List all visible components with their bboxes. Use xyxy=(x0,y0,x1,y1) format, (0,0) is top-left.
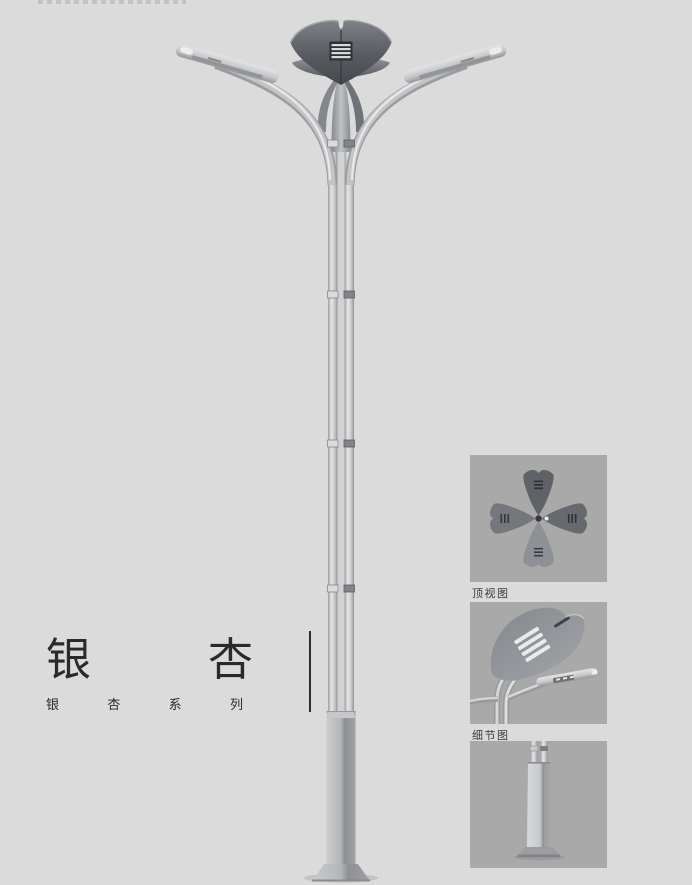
title-char: 杏 xyxy=(208,636,253,683)
square-base-column xyxy=(304,711,378,883)
left-lamp-head xyxy=(174,43,279,85)
subtitle-char: 杏 xyxy=(107,694,120,713)
base-plate xyxy=(312,864,370,882)
series-subtitle: 银 杏 系 列 xyxy=(46,694,243,713)
title-block: 银 杏 银 杏 系 列 xyxy=(46,636,266,713)
top-view-image xyxy=(470,455,607,582)
series-title: 银 杏 xyxy=(46,636,253,683)
right-lamp-head xyxy=(402,43,507,85)
subtitle-char: 银 xyxy=(46,694,59,713)
twin-tube-pole xyxy=(328,152,354,715)
louver-panel xyxy=(330,42,353,61)
catalog-page: 银 杏 银 杏 系 列 xyxy=(0,0,692,885)
ginkgo-crown xyxy=(291,21,392,85)
detail-view-panel xyxy=(470,602,607,724)
title-char: 银 xyxy=(46,636,91,683)
subtitle-char: 列 xyxy=(230,694,243,713)
title-divider-line xyxy=(309,631,311,712)
top-view-panel xyxy=(470,455,607,582)
top-view-label: 顶视图 xyxy=(472,585,510,601)
base-view-image xyxy=(470,741,607,868)
base-column xyxy=(527,762,551,849)
base-view-panel xyxy=(470,741,607,868)
detail-view-image xyxy=(470,602,607,724)
subtitle-char: 系 xyxy=(169,694,182,713)
